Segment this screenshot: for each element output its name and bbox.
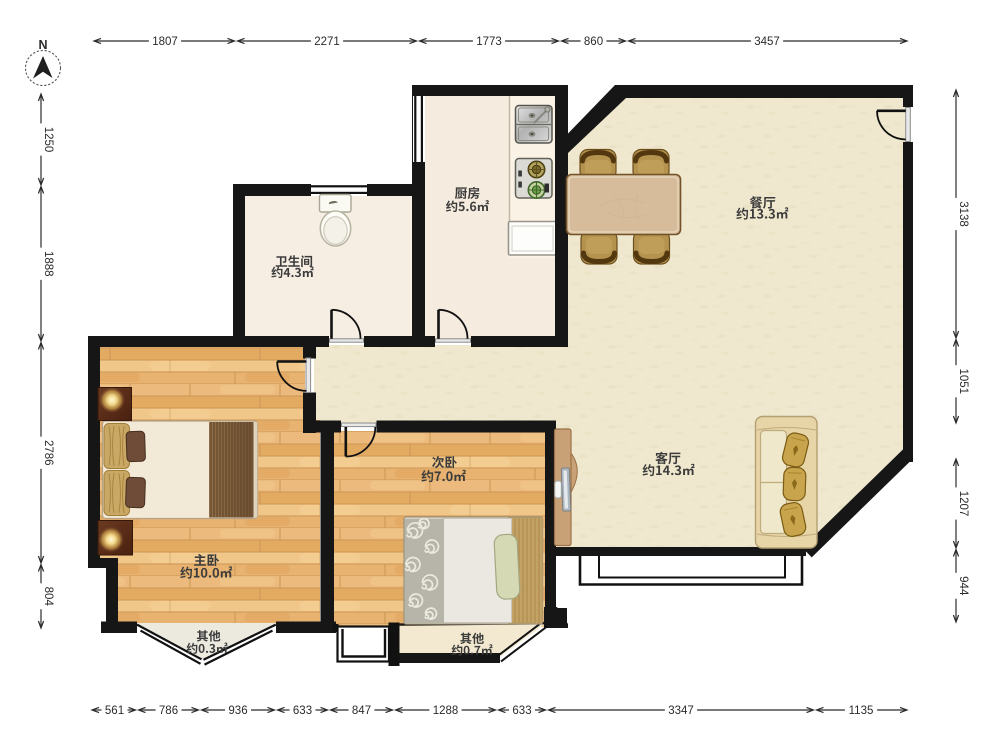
svg-text:1773: 1773 bbox=[476, 36, 502, 48]
svg-text:3347: 3347 bbox=[668, 705, 694, 717]
svg-text:633: 633 bbox=[293, 705, 312, 717]
svg-text:633: 633 bbox=[512, 705, 531, 717]
svg-text:2271: 2271 bbox=[314, 36, 340, 48]
svg-text:N: N bbox=[38, 38, 47, 52]
svg-text:936: 936 bbox=[228, 705, 247, 717]
svg-text:804: 804 bbox=[42, 587, 54, 607]
svg-text:1807: 1807 bbox=[152, 36, 178, 48]
svg-text:1250: 1250 bbox=[42, 127, 54, 153]
svg-text:860: 860 bbox=[584, 36, 603, 48]
svg-text:2786: 2786 bbox=[42, 440, 54, 466]
svg-text:944: 944 bbox=[957, 576, 969, 596]
svg-text:561: 561 bbox=[105, 705, 124, 717]
svg-text:1288: 1288 bbox=[433, 705, 459, 717]
svg-text:786: 786 bbox=[159, 705, 178, 717]
svg-text:1135: 1135 bbox=[849, 705, 874, 717]
svg-text:847: 847 bbox=[352, 705, 371, 717]
svg-text:1207: 1207 bbox=[957, 491, 969, 517]
svg-text:1888: 1888 bbox=[42, 251, 54, 277]
svg-text:3457: 3457 bbox=[754, 36, 780, 48]
svg-text:3138: 3138 bbox=[957, 201, 969, 227]
svg-text:1051: 1051 bbox=[957, 368, 969, 394]
